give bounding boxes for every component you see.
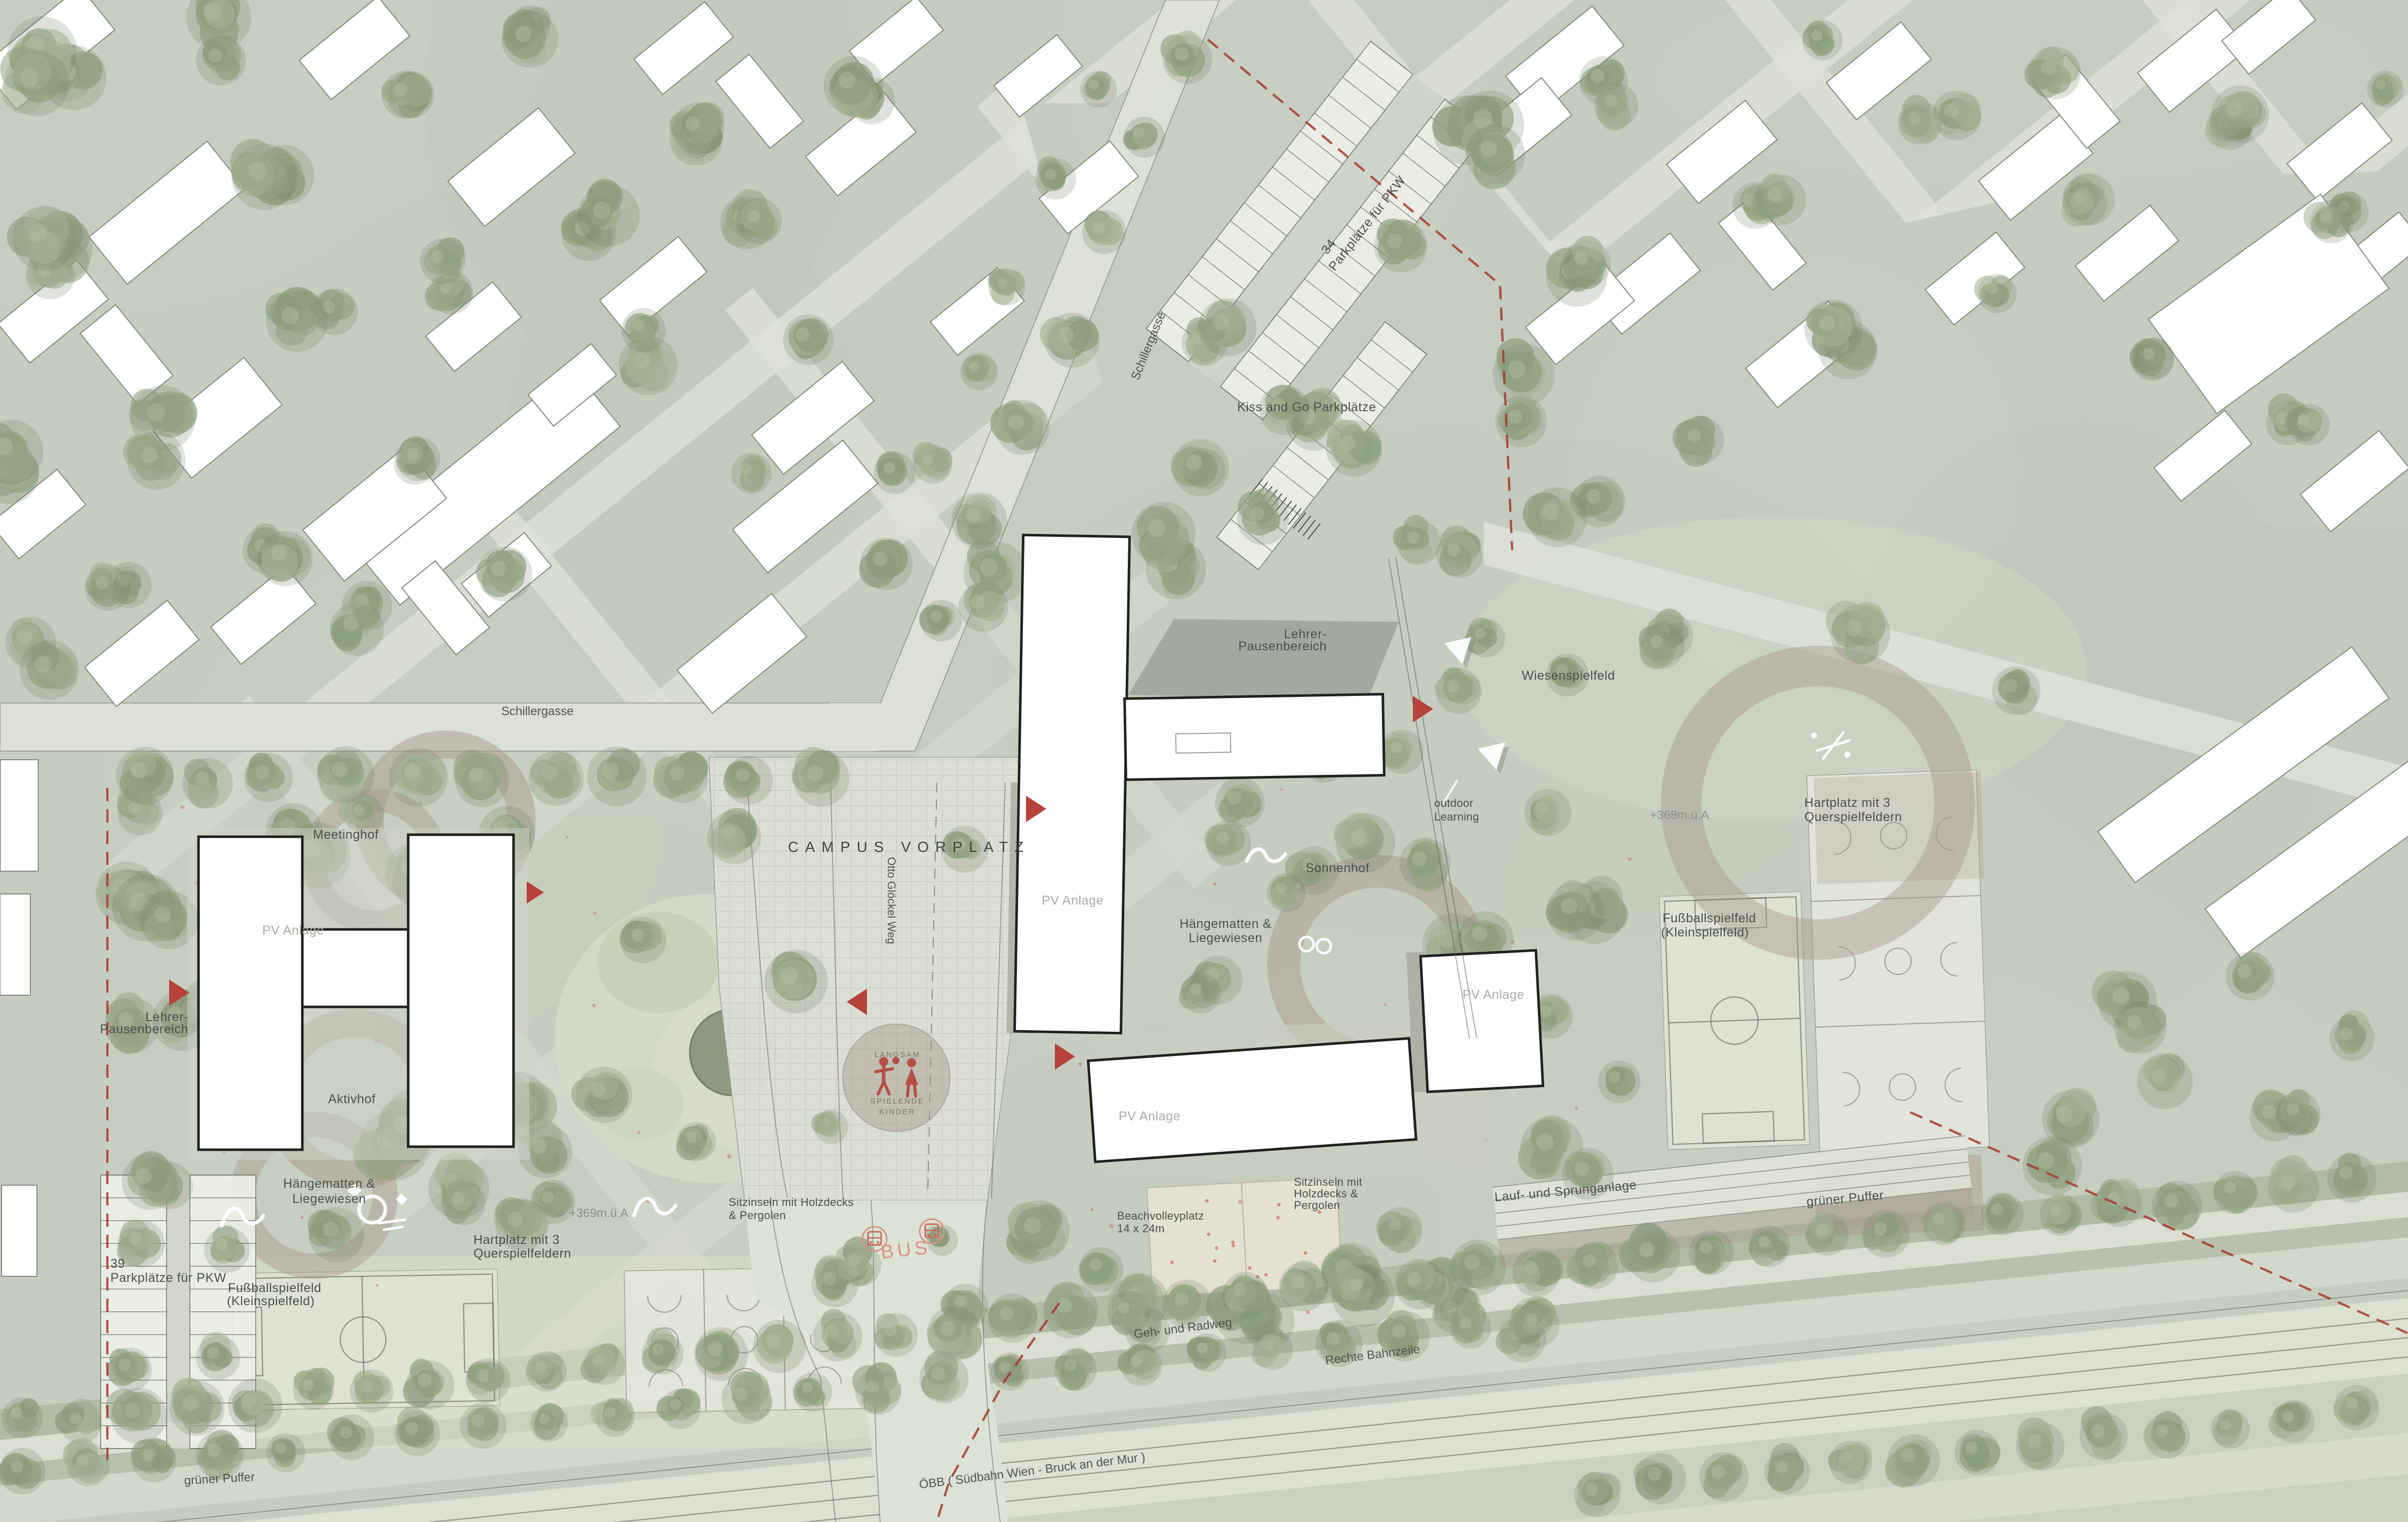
teacher-terrace-canopy [1128, 619, 1399, 700]
label-outdoor-learning-2: Learning [1434, 810, 1479, 823]
label-outdoor-learning-1: outdoor [1434, 797, 1473, 809]
skylight [1176, 733, 1231, 753]
label-hartplatz-west-2: Querspielfeldern [473, 1246, 571, 1261]
label-football-west-1: Fußballspielfeld [228, 1281, 322, 1295]
label-pv-east: PV Anlage [1463, 988, 1524, 1002]
campus-site-plan: 34 Parkplätze für PKW Kiss and Go Parkpl… [0, 0, 2408, 1522]
label-hartplatz-east-2: Querspielfeldern [1804, 810, 1902, 824]
label-pv-main: PV Anlage [1042, 893, 1103, 908]
label-seating-islands-east-2: Holzdecks & [1294, 1187, 1358, 1200]
label-hartplatz-east-1: Hartplatz mit 3 [1804, 796, 1890, 810]
label-hartplatz-west-1: Hartplatz mit 3 [473, 1233, 560, 1247]
main-school-slab [1014, 535, 1129, 1033]
label-pv-south: PV Anlage [1119, 1109, 1180, 1123]
label-seating-islands-center-2: & Pergolen [729, 1209, 786, 1222]
label-elevation-368: +368m.ü.A [1650, 808, 1709, 822]
label-hammocks-west-1: Hängematten & [283, 1177, 375, 1191]
existing-house [0, 894, 30, 995]
school-west-wing [199, 837, 302, 1150]
school-connector [302, 929, 408, 1007]
label-langsam: LANGSAM [875, 1050, 921, 1059]
label-football-east-1: Fußballspielfeld [1663, 911, 1756, 925]
label-sonnenhof: Sonnenhof [1306, 861, 1369, 875]
label-meetinghof: Meetinghof [313, 828, 379, 842]
label-kiss-and-go: Kiss and Go Parkplätze [1237, 400, 1376, 414]
main-school-east-wing [1125, 694, 1385, 780]
south-building [1088, 1038, 1416, 1162]
label-seating-islands-east-3: Pergolen [1294, 1199, 1340, 1212]
existing-house [2, 1185, 37, 1276]
label-hammocks-center-2: Liegewiesen [1189, 931, 1262, 945]
label-wiesenspielfeld: Wiesenspielfeld [1522, 669, 1615, 683]
label-pv-west: PV Anlage [262, 923, 324, 938]
label-beachvolley-2: 14 x 24m [1117, 1222, 1165, 1235]
label-hammocks-center-1: Hängematten & [1179, 917, 1272, 931]
existing-house [1, 760, 38, 871]
label-football-east-2: (Kleinspielfeld) [1661, 925, 1749, 940]
school-east-wing [408, 835, 514, 1147]
label-teacher-break-west-2: Pausenbereich [100, 1022, 188, 1036]
label-beachvolley-1: Beachvolleyplatz [1117, 1209, 1204, 1222]
label-spielende: SPIELENDE [871, 1097, 925, 1106]
label-kinder: KINDER [879, 1108, 916, 1116]
east-building [1420, 950, 1543, 1092]
label-football-west-2: (Kleinspielfeld) [227, 1294, 315, 1308]
label-parking39: Parkplätze für PKW [110, 1271, 226, 1285]
label-otto-gloeckel-weg: Otto Glöckel Weg [885, 857, 898, 944]
label-seating-islands-center-1: Sitzinseln mit Holzdecks [729, 1196, 854, 1208]
label-seating-islands-east-1: Sitzinseln mit [1294, 1176, 1362, 1188]
site-plan-stage: 34 Parkplätze für PKW Kiss and Go Parkpl… [0, 0, 2408, 1522]
label-campus-vorplatz: CAMPUS VORPLATZ [788, 839, 1030, 855]
label-aktivhof: Aktivhof [328, 1092, 376, 1106]
label-parking39-count: 39 [110, 1257, 125, 1271]
label-elevation-369: +369m.ü.A [569, 1206, 628, 1220]
label-schillergasse: Schillergasse [501, 705, 574, 718]
label-hammocks-west-2: Liegewiesen [292, 1192, 366, 1206]
label-teacher-break-north-2: Pausenbereich [1238, 639, 1327, 653]
